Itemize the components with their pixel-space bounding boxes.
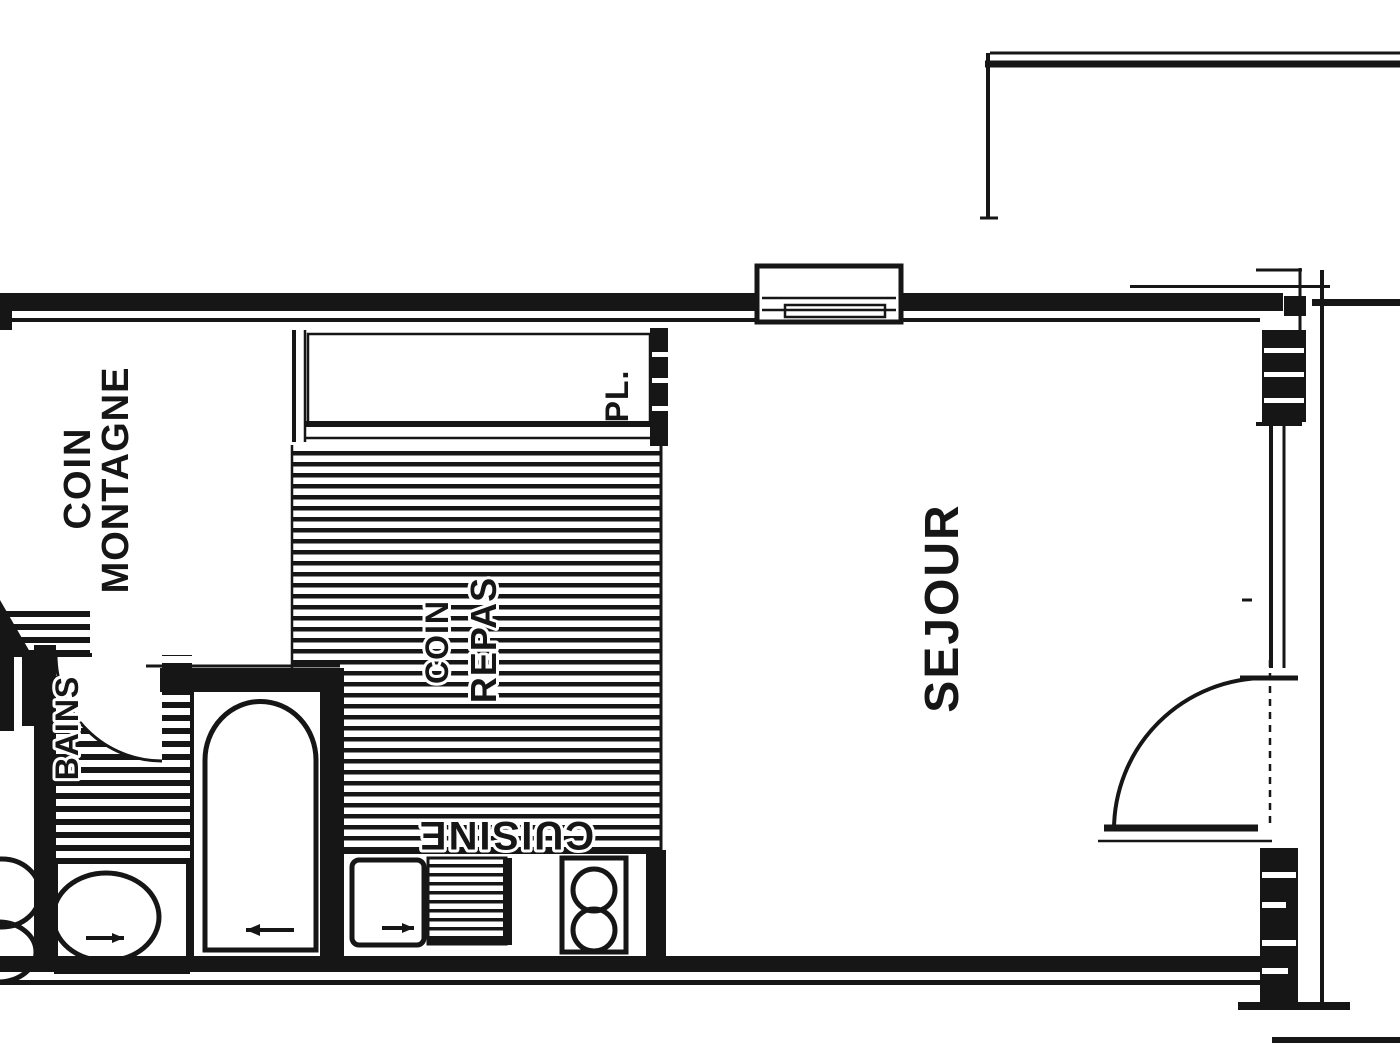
room-label-placard: PL. bbox=[599, 370, 635, 423]
room-label-cuisine: CUISINE bbox=[418, 813, 594, 857]
room-label-coin-montagne-1: COIN bbox=[57, 427, 99, 530]
kitchen-drainboard bbox=[428, 858, 506, 944]
room-label-sejour: SEJOUR bbox=[916, 503, 969, 712]
floor-plan-svg: COIN MONTAGNE PL. COIN REPAS SEJOUR CUIS… bbox=[0, 0, 1400, 1050]
room-label-bains: BAINS bbox=[49, 676, 85, 781]
kitchen-stove bbox=[562, 858, 626, 952]
room-label-coin-repas-2: REPAS bbox=[463, 577, 504, 703]
paper-background bbox=[0, 0, 1400, 1050]
room-label-coin-montagne-2: MONTAGNE bbox=[95, 367, 137, 594]
floor-plan-page: COIN MONTAGNE PL. COIN REPAS SEJOUR CUIS… bbox=[0, 0, 1400, 1050]
kitchen-fixtures bbox=[352, 858, 626, 952]
kitchen-sink bbox=[352, 860, 424, 945]
room-label-coin-repas-1: COIN bbox=[419, 600, 455, 684]
